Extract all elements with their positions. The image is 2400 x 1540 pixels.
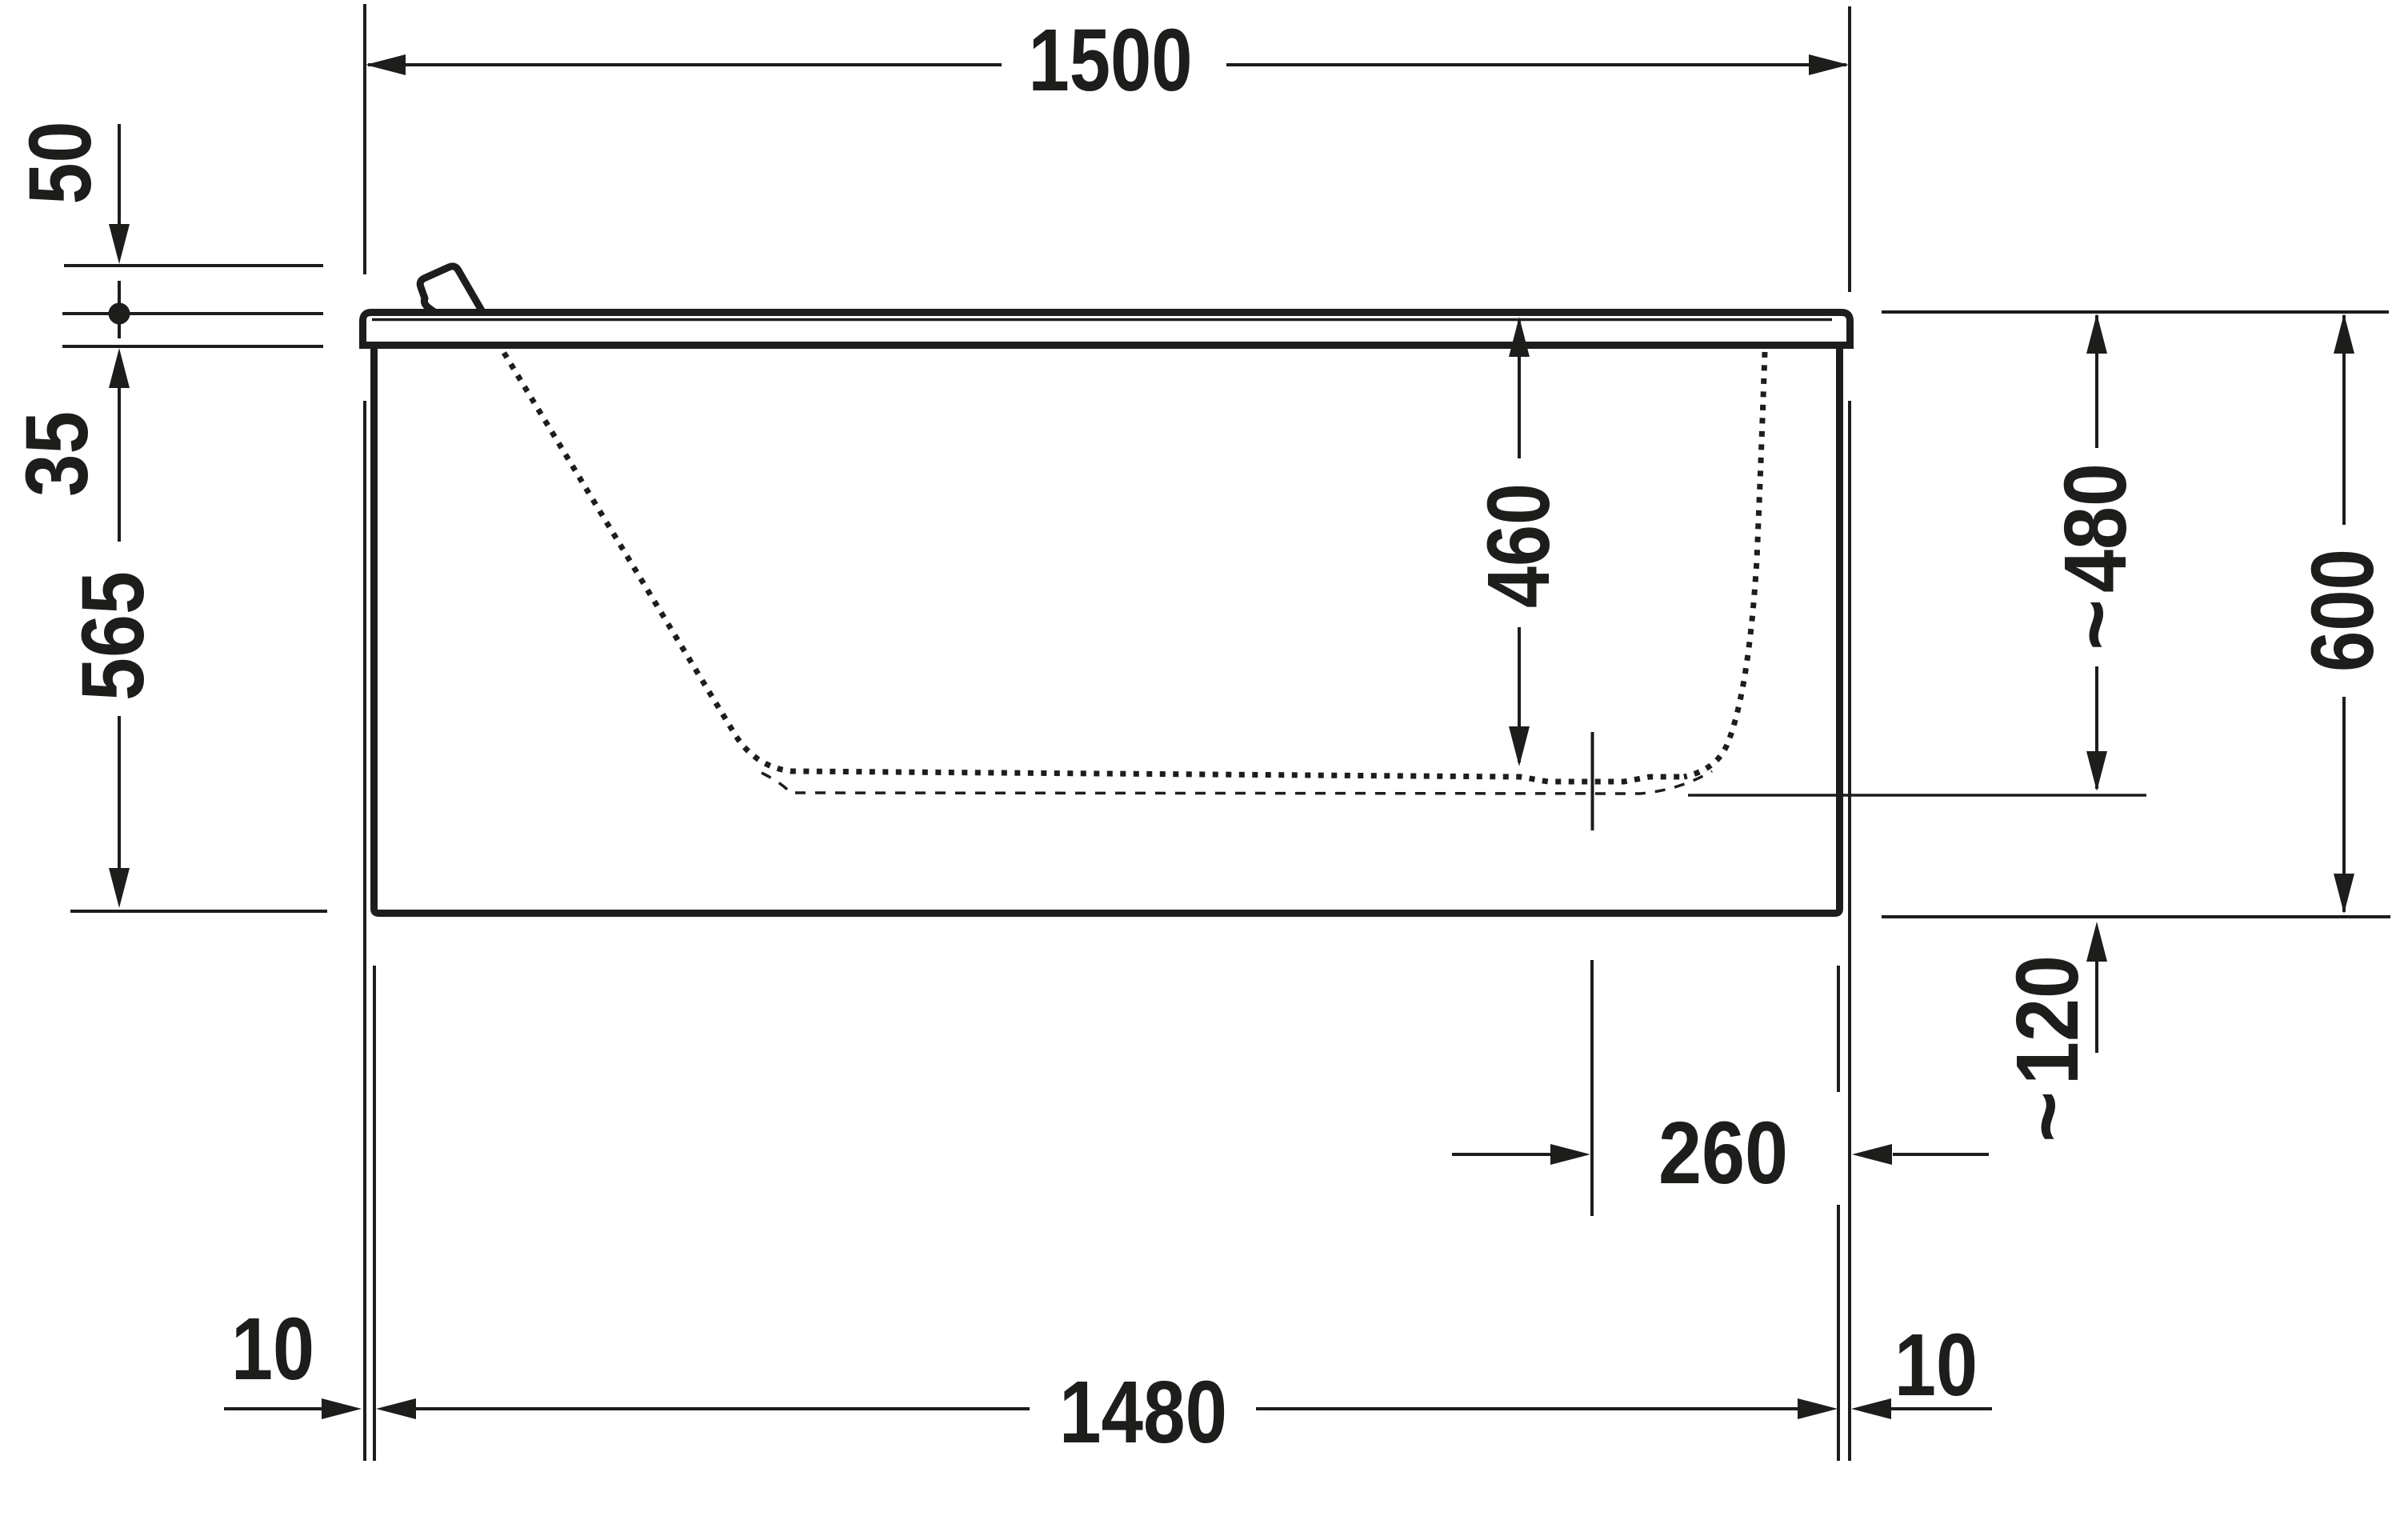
svg-text:120: 120 (1998, 955, 2097, 1085)
svg-text:460: 460 (1470, 483, 1568, 608)
svg-text:260: 260 (1658, 1104, 1788, 1202)
svg-text:565: 565 (64, 571, 162, 701)
svg-text:1500: 1500 (1029, 11, 1193, 110)
svg-text:1480: 1480 (1059, 1363, 1227, 1462)
svg-text:35: 35 (8, 411, 106, 497)
svg-text:50: 50 (11, 122, 110, 205)
svg-text:10: 10 (231, 1300, 314, 1398)
svg-text:600: 600 (2294, 549, 2392, 672)
svg-text:480: 480 (2046, 463, 2145, 593)
svg-text:~: ~ (1998, 1091, 2097, 1142)
svg-text:~: ~ (2046, 599, 2145, 650)
svg-text:10: 10 (1894, 1316, 1978, 1414)
